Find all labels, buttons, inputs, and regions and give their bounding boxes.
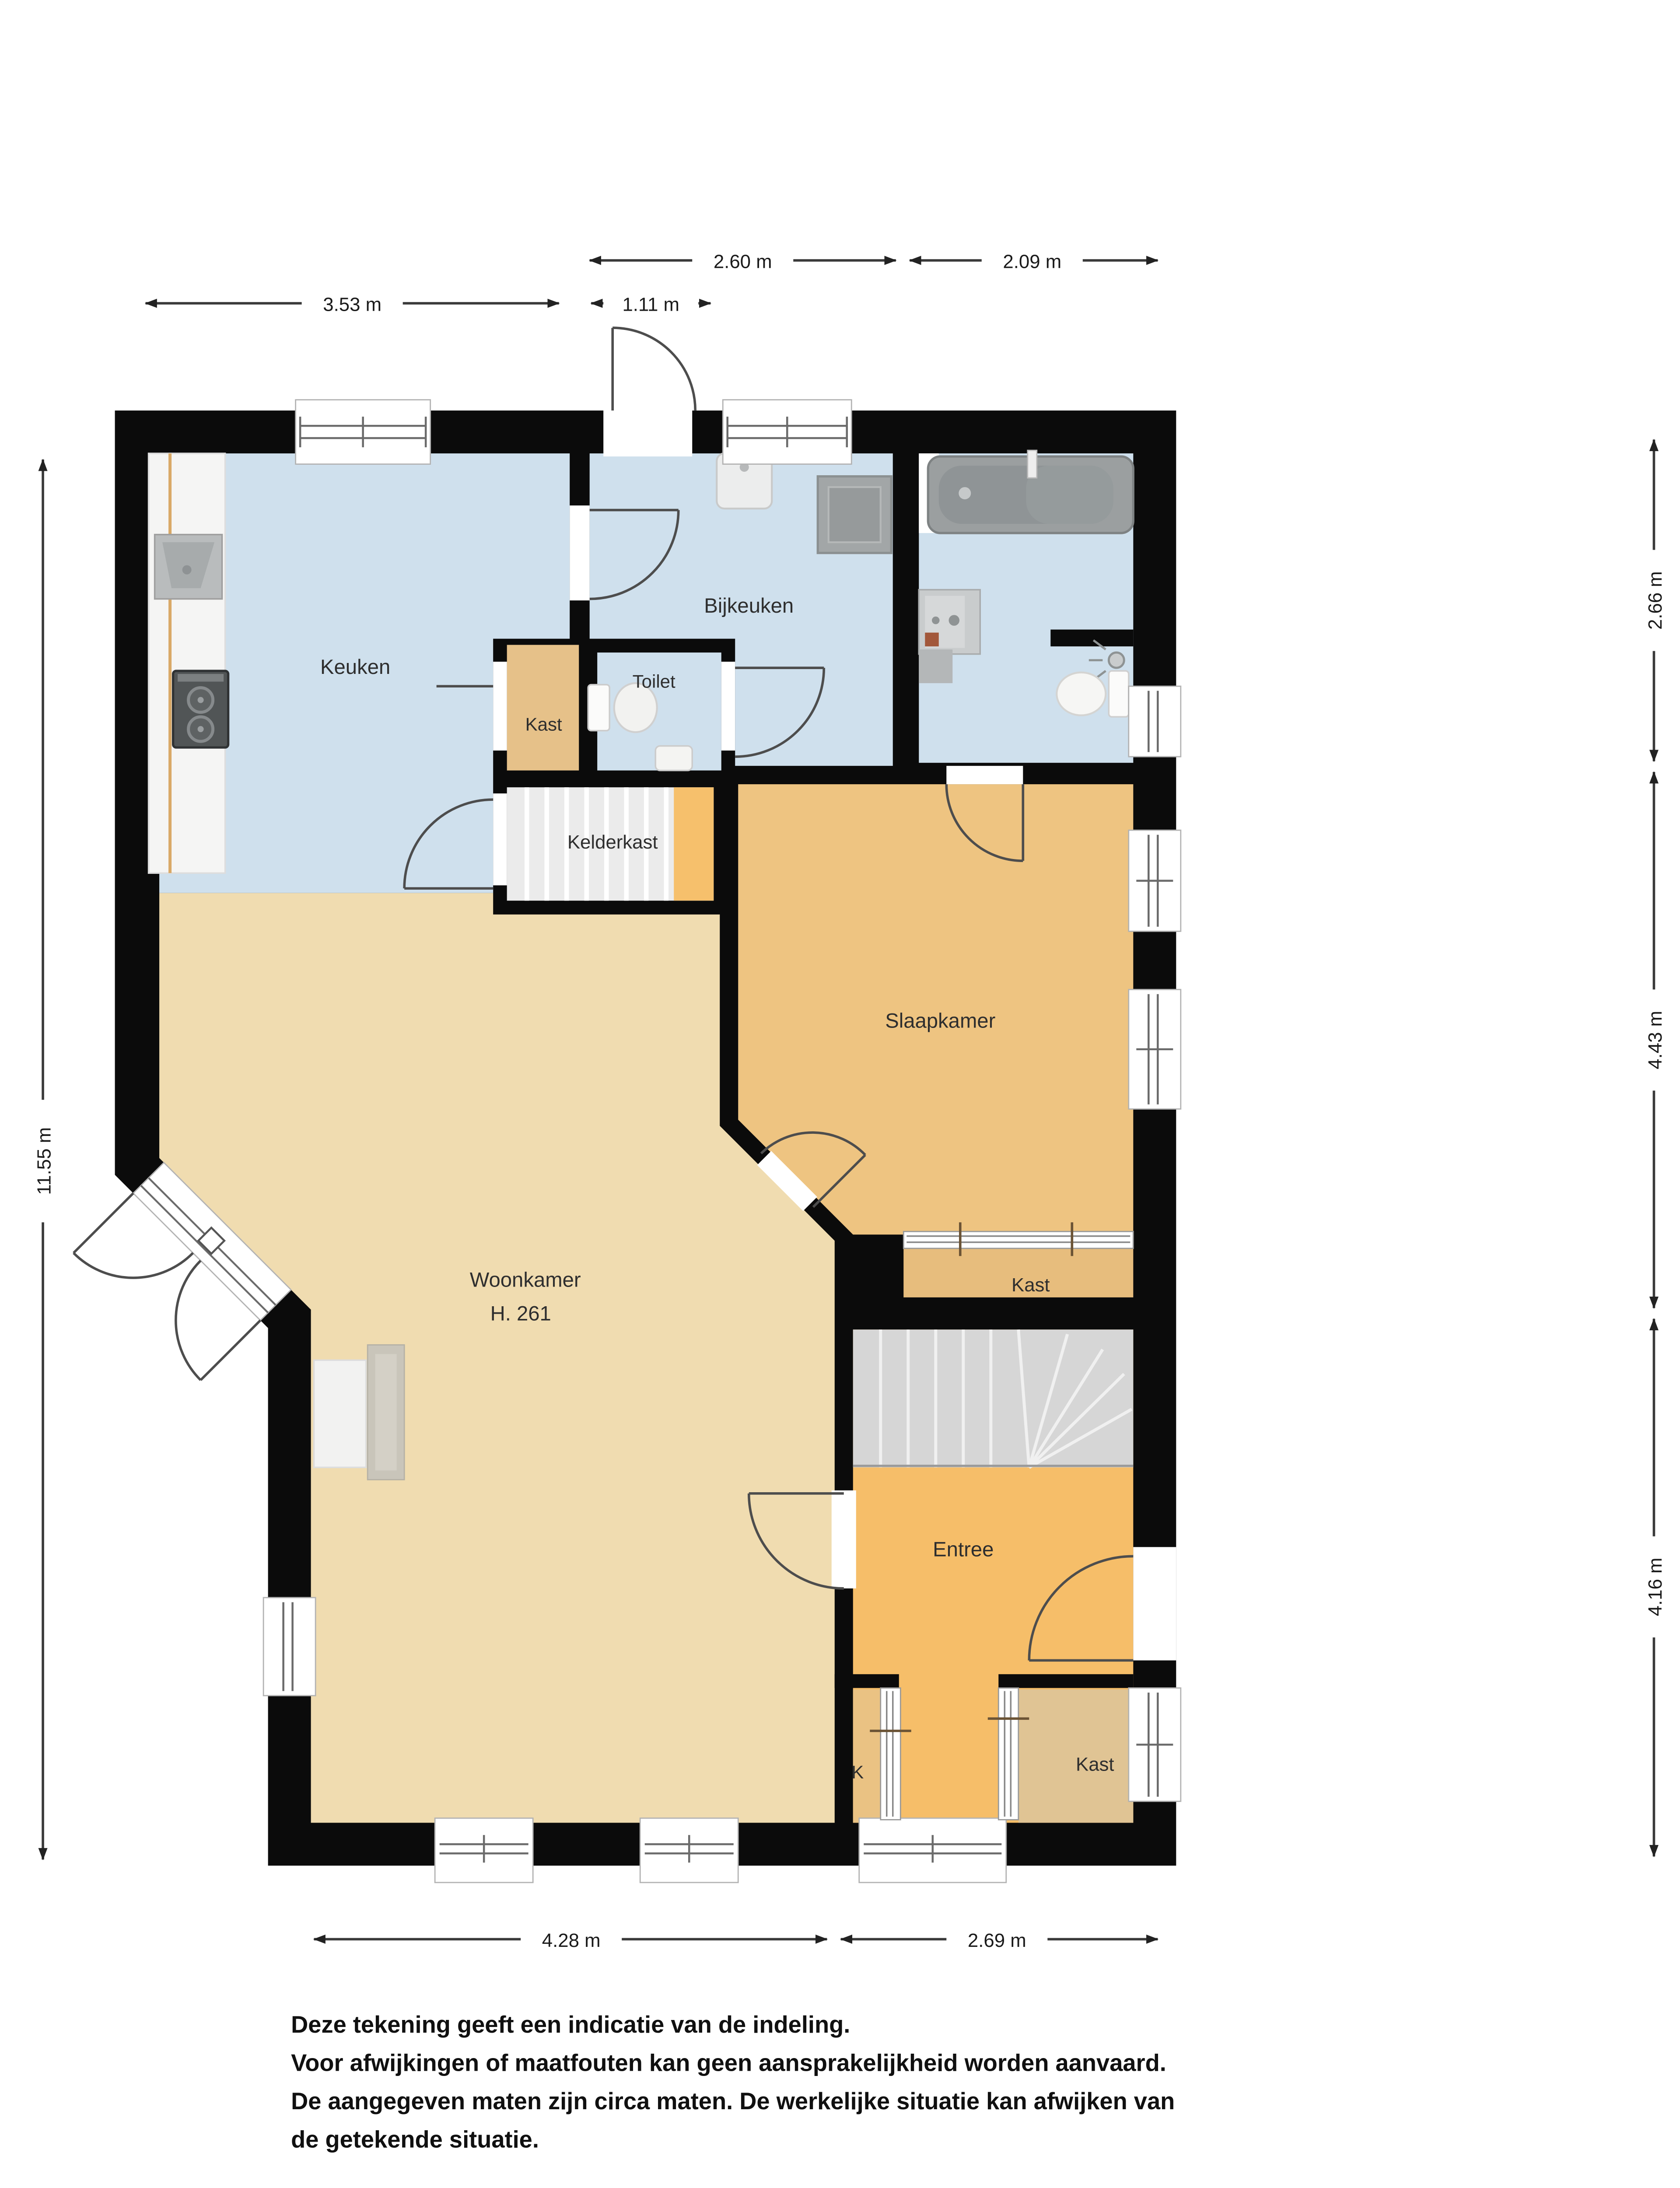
svg-text:2.69 m: 2.69 m	[968, 1930, 1026, 1951]
room-label-k: K	[851, 1762, 864, 1782]
disclaimer-line-3: De aangegeven maten zijn circa maten. De…	[291, 2088, 1175, 2114]
kast-entree-top-wall	[998, 1674, 1133, 1688]
room-kast-boven-floor	[507, 645, 579, 771]
bathroom-cabinet	[919, 649, 952, 683]
bathtub-icon	[928, 450, 1133, 533]
disclaimer-line-2: Voor afwijkingen of maatfouten kan geen …	[291, 2050, 1166, 2076]
stove-icon	[173, 671, 228, 747]
kitchen-sink-icon	[155, 535, 222, 599]
room-label-kelderkast: Kelderkast	[567, 831, 658, 853]
stairs-base	[853, 1329, 1134, 1467]
room-label-bijkeuken: Bijkeuken	[704, 594, 794, 617]
floor-plan-svg: Keuken Bijkeuken Toilet Kast Kelderkast …	[0, 0, 1680, 2188]
room-label-woonkamer-height: H. 261	[490, 1302, 551, 1325]
svg-text:1.11 m: 1.11 m	[622, 294, 679, 316]
door-bijkeuken-exterior	[603, 328, 695, 456]
svg-text:2.09 m: 2.09 m	[1003, 251, 1061, 273]
dim-bottom-4-28: 4.28 m	[314, 1922, 827, 1955]
window-entree-bottom	[859, 1818, 1006, 1883]
dim-bottom-2-69: 2.69 m	[841, 1922, 1158, 1955]
room-k-floor	[853, 1690, 882, 1823]
svg-text:11.55 m: 11.55 m	[34, 1127, 55, 1195]
kitchen-counter	[149, 453, 225, 873]
toilet-basin-icon	[655, 746, 692, 771]
window-woonkamer-bottom-2	[640, 1818, 738, 1883]
room-label-kast-entree: Kast	[1076, 1753, 1114, 1775]
window-woonkamer-bottom-1	[435, 1818, 533, 1883]
room-label-kast-boven: Kast	[525, 714, 562, 735]
dim-top-2-60: 2.60 m	[590, 244, 896, 276]
room-label-toilet: Toilet	[633, 671, 675, 692]
room-label-woonkamer: Woonkamer	[470, 1268, 581, 1291]
fireplace-icon	[314, 1345, 405, 1480]
kelderkast-strip	[674, 787, 714, 901]
dim-top-1-11: 1.11 m	[591, 287, 710, 319]
window-slaapkamer-1	[1129, 830, 1181, 931]
k-top-wall	[835, 1674, 899, 1688]
badkamer-stub-wall	[1050, 630, 1133, 647]
room-label-keuken: Keuken	[320, 656, 390, 679]
svg-text:4.28 m: 4.28 m	[542, 1930, 601, 1951]
window-bijkeuken	[723, 400, 851, 464]
svg-text:2.66 m: 2.66 m	[1645, 571, 1666, 630]
toilet-tank	[588, 685, 609, 731]
window-woonkamer-left	[263, 1598, 315, 1696]
kitchen-fixtures	[149, 453, 228, 873]
window-kast-entree	[1129, 1688, 1181, 1801]
disclaimer-line-1: Deze tekening geeft een indicatie van de…	[291, 2012, 850, 2038]
svg-text:4.43 m: 4.43 m	[1645, 1011, 1666, 1069]
room-label-slaapkamer: Slaapkamer	[885, 1010, 995, 1033]
room-label-kast-slaap: Kast	[1011, 1274, 1050, 1296]
svg-text:3.53 m: 3.53 m	[323, 294, 381, 316]
bathroom-sink-icon	[919, 590, 980, 654]
dim-top-3-53: 3.53 m	[146, 287, 559, 319]
window-keuken	[296, 400, 430, 464]
disclaimer-text: Deze tekening geeft een indicatie van de…	[291, 2012, 1175, 2153]
disclaimer-line-4: de getekende situatie.	[291, 2126, 539, 2153]
dim-right-4-16: 4.16 m	[1637, 1319, 1669, 1857]
room-label-entree: Entree	[933, 1538, 994, 1561]
page: Keuken Bijkeuken Toilet Kast Kelderkast …	[0, 0, 1680, 2188]
entree-stairs-icon	[853, 1329, 1134, 1467]
bathroom-toilet-icon	[1057, 671, 1129, 717]
dim-left-11-55: 11.55 m	[26, 459, 59, 1859]
dim-right-2-66: 2.66 m	[1637, 440, 1669, 761]
washing-machine-icon	[818, 477, 891, 553]
window-slaapkamer-2	[1129, 989, 1181, 1109]
dim-right-4-43: 4.43 m	[1637, 772, 1669, 1308]
window-badkamer	[1129, 686, 1181, 757]
svg-text:2.60 m: 2.60 m	[714, 251, 772, 273]
dim-top-2-09: 2.09 m	[910, 244, 1158, 276]
svg-text:4.16 m: 4.16 m	[1645, 1557, 1666, 1616]
